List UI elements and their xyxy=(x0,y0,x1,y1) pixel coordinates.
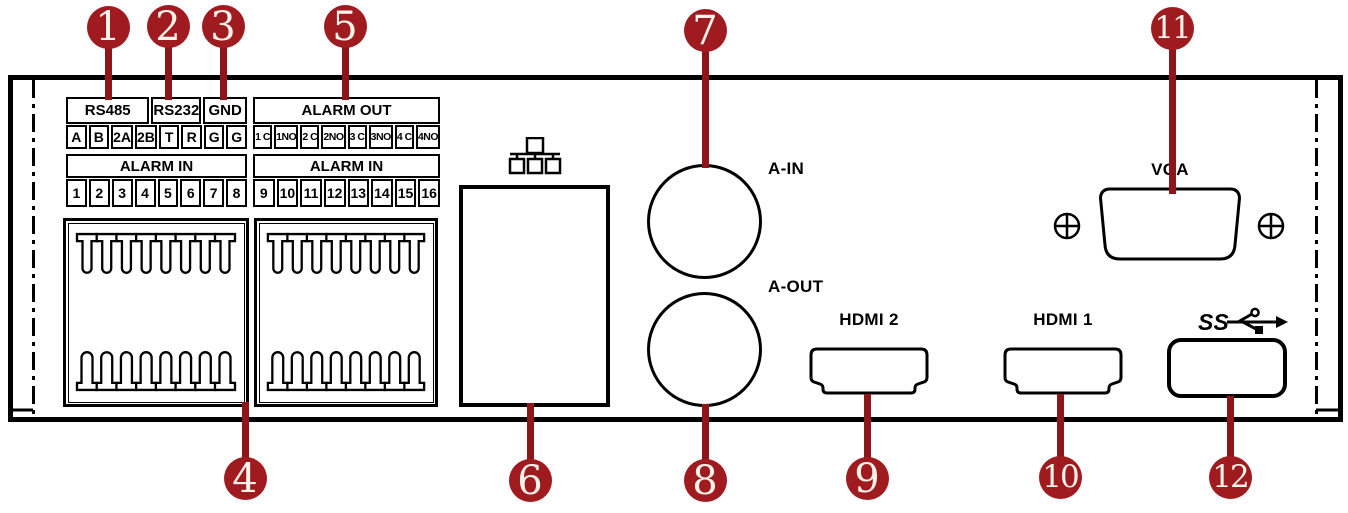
vga-port xyxy=(1096,187,1244,263)
terminal-group-header: ALARM IN xyxy=(253,154,440,178)
callout-stem-4 xyxy=(242,402,249,460)
terminal-pin-bottom xyxy=(346,352,366,390)
terminal-cell: 1NO xyxy=(274,125,298,149)
terminal-cell: 14 xyxy=(371,179,393,207)
hdmi-1-label: HDMI 1 xyxy=(1000,310,1126,330)
terminal-pin-bottom xyxy=(116,352,136,390)
terminal-cell: 4 xyxy=(135,179,156,207)
terminal-cell: B xyxy=(89,125,110,149)
callout-stem-6 xyxy=(527,403,534,462)
lan-network-icon xyxy=(506,137,564,177)
terminal-pin-bottom xyxy=(385,352,405,390)
terminal-cell: 15 xyxy=(395,179,417,207)
terminal-cell: G xyxy=(204,125,225,149)
terminal-group-header: ALARM OUT xyxy=(253,97,440,124)
terminal-pin-top xyxy=(268,234,288,273)
callout-11-number: 11 xyxy=(1154,13,1189,44)
callout-10: 10 xyxy=(1039,456,1082,499)
terminal-cell: R xyxy=(181,125,202,149)
callout-7: 7 xyxy=(684,9,727,52)
audio-in-port xyxy=(647,164,762,279)
terminal-cell: 8 xyxy=(226,179,247,207)
callout-stem-12 xyxy=(1227,396,1234,459)
terminal-group-header: GND xyxy=(203,97,247,124)
terminal-cell: 12 xyxy=(324,179,346,207)
terminal-pin-bottom xyxy=(404,352,424,390)
callout-3: 3 xyxy=(202,5,245,48)
terminal-cell: 16 xyxy=(418,179,440,207)
terminal-pin-bottom xyxy=(97,352,117,390)
callout-12-number: 12 xyxy=(1212,462,1247,493)
callout-8: 8 xyxy=(684,459,727,502)
audio-out-label: A-OUT xyxy=(768,277,823,297)
callout-stem-9 xyxy=(864,394,871,460)
terminal-pin-top xyxy=(215,234,235,273)
terminal-pin-bottom xyxy=(77,352,97,390)
terminal-pin-top xyxy=(176,234,196,273)
terminal-block-left xyxy=(63,218,249,407)
terminal-pin-top xyxy=(195,234,215,273)
callout-9: 9 xyxy=(846,457,889,500)
terminal-pin-bottom xyxy=(195,352,215,390)
usb3-superspeed-icon: SS xyxy=(1196,306,1288,336)
callout-6-number: 6 xyxy=(517,461,542,501)
callout-7-number: 7 xyxy=(692,11,717,51)
callout-12: 12 xyxy=(1209,456,1252,499)
callout-stem-10 xyxy=(1057,394,1064,459)
terminal-pin-top xyxy=(136,234,156,273)
terminal-pin-bottom xyxy=(287,352,307,390)
alarm-out-terminal-table: ALARM OUT1 C1NO2 C2NO3 C3NO4 C4NO xyxy=(253,97,440,149)
terminal-cell: 11 xyxy=(300,179,322,207)
terminal-pin-top xyxy=(156,234,176,273)
terminal-pin-top xyxy=(97,234,117,273)
terminal-cell: T xyxy=(159,125,180,149)
terminal-cell: 1 C xyxy=(253,125,272,149)
audio-out-port xyxy=(647,292,762,407)
terminal-pin-top xyxy=(77,234,97,273)
terminal-cell: 4 C xyxy=(395,125,414,149)
audio-in-label: A-IN xyxy=(768,159,804,179)
usb-port xyxy=(1167,338,1287,398)
callout-stem-8 xyxy=(702,404,709,462)
hdmi-2-label: HDMI 2 xyxy=(806,310,932,330)
terminal-pin-top xyxy=(116,234,136,273)
terminal-cell: 3 xyxy=(112,179,133,207)
terminal-pin-top xyxy=(287,234,307,273)
terminal-pin-bottom xyxy=(307,352,327,390)
terminal-cell: 2 C xyxy=(300,125,319,149)
terminal-pin-top xyxy=(404,234,424,273)
terminal-cell: 2B xyxy=(135,125,157,149)
terminal-cell: 5 xyxy=(158,179,179,207)
ethernet-port xyxy=(459,185,610,407)
callout-3-number: 3 xyxy=(210,7,235,47)
terminal-pin-top xyxy=(365,234,385,273)
terminal-cell: 13 xyxy=(348,179,370,207)
terminal-pin-bottom xyxy=(176,352,196,390)
terminal-cell: G xyxy=(226,125,247,149)
terminal-cell: A xyxy=(66,125,87,149)
callout-2-number: 2 xyxy=(155,7,180,47)
alarm-in-9-16-terminal-table: ALARM IN910111213141516 xyxy=(253,154,440,207)
terminal-cell: 2NO xyxy=(321,125,345,149)
alarm-in-1-8-terminal-table: ALARM IN12345678 xyxy=(66,154,247,207)
terminal-cell: 3NO xyxy=(369,125,393,149)
usb-ss-text: SS xyxy=(1198,309,1229,335)
terminal-cell: 6 xyxy=(180,179,201,207)
hdmi-2-port xyxy=(806,347,932,397)
terminal-pins xyxy=(66,221,246,404)
terminal-cell: 3 C xyxy=(348,125,367,149)
terminal-group-header: RS232 xyxy=(151,97,201,124)
callout-stem-7 xyxy=(702,45,709,168)
callout-10-number: 10 xyxy=(1042,462,1077,493)
serial-terminal-table: RS485RS232GNDAB2A2BTRGG xyxy=(66,97,247,149)
callout-9-number: 9 xyxy=(854,459,879,499)
terminal-cell: 10 xyxy=(277,179,299,207)
terminal-cell: 7 xyxy=(203,179,224,207)
terminal-block-right xyxy=(254,218,438,407)
hdmi-1-port xyxy=(1000,347,1126,397)
terminal-pin-top xyxy=(307,234,327,273)
terminal-pin-bottom xyxy=(215,352,235,390)
terminal-cell: 4NO xyxy=(416,125,440,149)
terminal-pin-top xyxy=(346,234,366,273)
callout-6: 6 xyxy=(509,459,552,502)
terminal-cell: 1 xyxy=(66,179,87,207)
screw-icon xyxy=(1053,212,1081,240)
terminal-pin-bottom xyxy=(136,352,156,390)
rear-panel-diagram: RS485RS232GNDAB2A2BTRGG ALARM OUT1 C1NO2… xyxy=(0,0,1348,513)
callout-stem-11 xyxy=(1169,44,1176,194)
terminal-pin-top xyxy=(326,234,346,273)
callout-1: 1 xyxy=(87,6,130,49)
screw-icon xyxy=(1257,212,1285,240)
terminal-pin-bottom xyxy=(268,352,288,390)
callout-5: 5 xyxy=(324,5,367,48)
terminal-pin-bottom xyxy=(365,352,385,390)
terminal-pin-bottom xyxy=(326,352,346,390)
terminal-group-header: RS485 xyxy=(66,97,149,124)
callout-4-number: 4 xyxy=(232,459,257,499)
callout-4: 4 xyxy=(224,457,267,500)
terminal-group-header: ALARM IN xyxy=(66,154,247,178)
terminal-pins xyxy=(257,221,435,404)
terminal-pin-bottom xyxy=(156,352,176,390)
callout-2: 2 xyxy=(147,5,190,48)
callout-11: 11 xyxy=(1151,7,1194,50)
callout-5-number: 5 xyxy=(332,7,357,47)
terminal-cell: 9 xyxy=(253,179,275,207)
terminal-cell: 2 xyxy=(89,179,110,207)
callout-1-number: 1 xyxy=(95,7,120,47)
terminal-pin-top xyxy=(385,234,405,273)
callout-8-number: 8 xyxy=(692,461,717,501)
terminal-cell: 2A xyxy=(111,125,133,149)
